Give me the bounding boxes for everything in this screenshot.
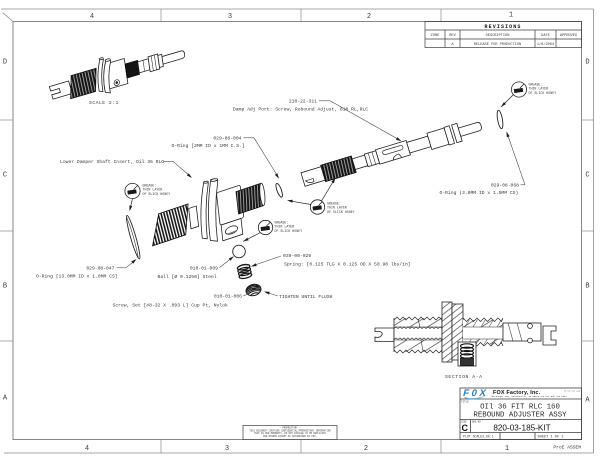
svg-text:039-00-029: 039-00-029 (283, 253, 311, 259)
svg-text:D: D (3, 59, 7, 67)
svg-text:C: C (585, 172, 589, 180)
svg-text:Screw, Set [#8-32 X .093 L] Cu: Screw, Set [#8-32 X .093 L] Cup Pt, Nylo… (113, 303, 229, 309)
svg-text:OF SLICK HONEY: OF SLICK HONEY (327, 210, 355, 214)
svg-text:4: 4 (85, 445, 89, 453)
svg-text:C: C (3, 172, 7, 180)
svg-text:FOR OTHERS EXCEPT AS AUTHORIZE: FOR OTHERS EXCEPT AS AUTHORIZED BY FOX. (263, 435, 317, 438)
svg-text:O-Ring (3.0MM ID x 1.5MM CS): O-Ring (3.0MM ID x 1.5MM CS) (440, 190, 519, 196)
svg-text:Ph 831 768 1145: Ph 831 768 1145 (564, 391, 580, 393)
svg-text:2: 2 (367, 13, 371, 21)
svg-text:C: C (462, 423, 469, 433)
svg-text:REBOUND ADJUSTER ASSY: REBOUND ADJUSTER ASSY (473, 412, 567, 420)
svg-text:4: 4 (90, 13, 94, 21)
svg-text:ProE ASSEM: ProE ASSEM (553, 445, 581, 451)
svg-text:O-Ring [13.0MM ID x 1.0MM CS]: O-Ring [13.0MM ID x 1.0MM CS] (36, 274, 118, 280)
svg-text:820-03-185-KIT: 820-03-185-KIT (493, 423, 550, 432)
svg-text:010-01-006: 010-01-006 (214, 294, 242, 300)
svg-text:D: D (585, 59, 589, 67)
svg-text:Ball [Ø 0.1250] Steel: Ball [Ø 0.1250] Steel (158, 273, 217, 280)
svg-text:O-Ring [3MM ID x 1MM C.S.]: O-Ring [3MM ID x 1MM C.S.] (172, 143, 245, 149)
svg-text:3: 3 (225, 445, 229, 453)
svg-text:TIGHTEN UNTIL FLUSH: TIGHTEN UNTIL FLUSH (279, 294, 333, 300)
svg-text:DESCRIPTION: DESCRIPTION (486, 34, 510, 38)
svg-text:Lower Damper Shaft Insert, Oil: Lower Damper Shaft Insert, Oil 36 RLC (60, 159, 164, 165)
svg-text:ZONE: ZONE (431, 34, 440, 38)
svg-text:1: 1 (509, 12, 513, 20)
svg-text:029-08-004: 029-08-004 (213, 136, 241, 142)
svg-text:029-08-068: 029-08-068 (491, 183, 519, 189)
svg-text:SECTION A-A: SECTION A-A (445, 374, 483, 380)
svg-text:SCALE 2:1: SCALE 2:1 (89, 100, 119, 106)
svg-text:PLOT SCALE3.00:1: PLOT SCALE3.00:1 (463, 435, 494, 439)
svg-text:REVISIONS: REVISIONS (485, 24, 522, 30)
svg-text:B: B (585, 283, 589, 291)
svg-text:REV: REV (449, 34, 456, 38)
svg-text:Spring: [0.125 TLG X 0.125 OD: Spring: [0.125 TLG X 0.125 OD X 50.90 lb… (284, 262, 411, 268)
svg-text:APPROVED: APPROVED (560, 34, 577, 38)
svg-text:2: 2 (364, 445, 368, 453)
svg-text:010-01-009: 010-01-009 (190, 266, 218, 272)
svg-text:130 Hangar Way, Watsonville, C: 130 Hangar Way, Watsonville, CA 95076 US… (491, 395, 568, 398)
svg-text:OF SLICK HONEY: OF SLICK HONEY (143, 192, 171, 196)
svg-text:1/6/2004: 1/6/2004 (537, 42, 554, 47)
svg-text:DWG NO.: DWG NO. (472, 420, 482, 423)
svg-text:SHEET 1 OF 1: SHEET 1 OF 1 (538, 436, 564, 440)
svg-text:DATE: DATE (541, 34, 550, 38)
svg-text:1: 1 (505, 445, 509, 453)
svg-text:029-08-047: 029-08-047 (86, 266, 114, 272)
svg-text:210-22-311: 210-22-311 (289, 99, 317, 105)
svg-text:OIl 36 FIT RLC 160: OIl 36 FIT RLC 160 (480, 404, 560, 412)
svg-text:3: 3 (228, 13, 232, 21)
svg-text:RELEASE FOR PRODUCTION: RELEASE FOR PRODUCTION (474, 43, 521, 47)
svg-text:Damp Adj Port: Screw, Rebound: Damp Adj Port: Screw, Rebound Adjust, 81… (233, 107, 368, 113)
svg-text:B: B (3, 283, 7, 291)
svg-text:TITLE: TITLE (461, 401, 469, 404)
svg-text:OF SLICK HONEY: OF SLICK HONEY (529, 91, 557, 95)
svg-text:OF SLICK HONEY: OF SLICK HONEY (275, 229, 303, 233)
